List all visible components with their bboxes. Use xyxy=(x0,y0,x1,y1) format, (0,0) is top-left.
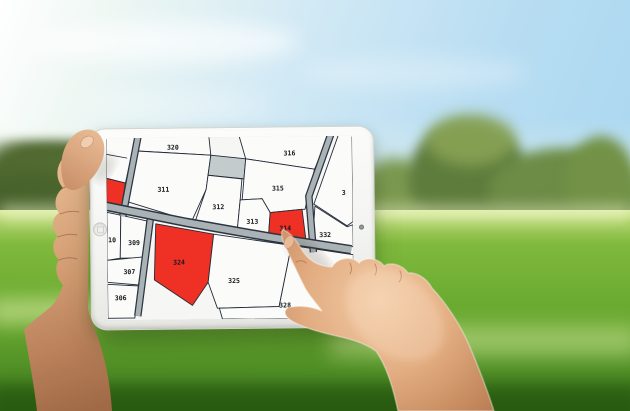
parcel-label-clipped-left: 10 xyxy=(108,236,116,244)
parcel-label-332: 332 xyxy=(319,231,331,239)
parcel-label-312: 312 xyxy=(212,203,224,211)
parcel-label-328: 328 xyxy=(279,301,291,309)
tablet: 320 316 311 315 312 313 314 332 3 10 309… xyxy=(89,126,376,331)
parcel-label-clipped-right: 3 xyxy=(342,189,346,197)
home-button-square xyxy=(97,226,104,233)
cloud xyxy=(30,22,300,62)
parcel-label-316: 316 xyxy=(284,149,296,157)
scene: 320 316 311 315 312 313 314 332 3 10 309… xyxy=(0,0,630,411)
tablet-screen[interactable]: 320 316 311 315 312 313 314 332 3 10 309… xyxy=(106,136,354,321)
parcel-label-307: 307 xyxy=(123,268,135,276)
parcel-label-315: 315 xyxy=(272,184,284,192)
cloud xyxy=(80,92,270,118)
grass-light-band xyxy=(330,326,630,356)
parcel-label-320: 320 xyxy=(167,144,179,152)
cadastral-map[interactable]: 320 316 311 315 312 313 314 332 3 10 309… xyxy=(106,136,354,321)
cloud xyxy=(300,58,530,88)
parcel-325[interactable] xyxy=(208,233,292,308)
parcel-label-324: 324 xyxy=(173,258,185,266)
parcel-label-309: 309 xyxy=(128,239,140,247)
parcel-label-325: 325 xyxy=(228,277,240,285)
parcel-label-314: 314 xyxy=(279,224,291,232)
parcel-label-311: 311 xyxy=(157,186,169,194)
parcel-label-313: 313 xyxy=(246,218,258,226)
grass-dark-band xyxy=(0,384,630,411)
parcel-label-306: 306 xyxy=(115,294,127,302)
tree xyxy=(426,114,516,166)
front-camera-icon xyxy=(359,225,364,230)
home-button-icon[interactable] xyxy=(93,222,107,236)
